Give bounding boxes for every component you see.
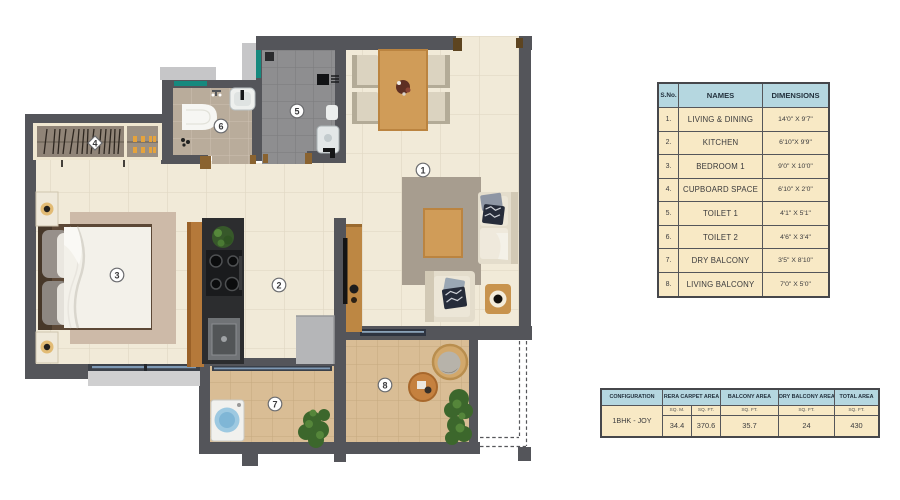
svg-text:2: 2 bbox=[276, 281, 281, 291]
svg-text:5: 5 bbox=[294, 107, 299, 117]
svg-text:7: 7 bbox=[272, 400, 277, 410]
svg-text:3: 3 bbox=[114, 271, 119, 281]
svg-text:8: 8 bbox=[382, 381, 387, 391]
svg-text:6: 6 bbox=[218, 122, 223, 132]
svg-text:1: 1 bbox=[420, 166, 425, 176]
svg-text:4: 4 bbox=[92, 139, 97, 149]
